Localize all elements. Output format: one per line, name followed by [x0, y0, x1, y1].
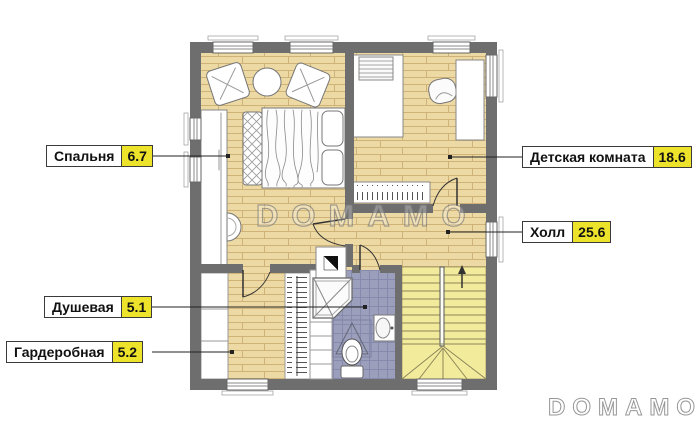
- room-label-wardrobe: Гардеробная5.2: [6, 341, 143, 363]
- wall-shower-jamb-left: [352, 265, 360, 273]
- wall-shower-stairs: [395, 265, 402, 379]
- room-area-kids-room: 18.6: [654, 146, 692, 168]
- room-area-bedroom: 6.7: [122, 145, 152, 167]
- window-left-1: [184, 113, 201, 145]
- leader-dot-bedroom: [226, 154, 230, 158]
- sink: [374, 315, 395, 341]
- tall-wardrobe: [201, 110, 227, 268]
- bed-bench: [243, 112, 262, 185]
- room-name-hall: Холл: [522, 221, 573, 243]
- toilet: [341, 339, 363, 378]
- wall-left: [190, 42, 201, 390]
- pillow-1: [322, 111, 343, 146]
- kids-wardrobe: [456, 60, 484, 140]
- window-top-3: [428, 36, 475, 53]
- window-right-2: [486, 217, 503, 262]
- floorplan-drawing: [0, 0, 700, 431]
- leader-dot-wardrobe: [230, 350, 234, 354]
- stairs-rail: [440, 267, 444, 346]
- room-name-wardrobe: Гардеробная: [6, 341, 113, 363]
- room-area-shower: 5.1: [122, 296, 152, 318]
- room-label-kids-room: Детская комната18.6: [522, 146, 692, 168]
- window-right-1: [486, 50, 503, 102]
- kids-dresser-ticks: [356, 185, 427, 200]
- wall-bedroom-kids: [345, 53, 354, 213]
- room-name-bedroom: Спальня: [46, 145, 122, 167]
- room-label-hall: Холл25.6: [522, 221, 611, 243]
- room-label-bedroom: Спальня6.7: [46, 145, 153, 167]
- floorplan-page: Спальня6.7 Детская комната18.6 Холл25.6 …: [0, 0, 700, 431]
- window-bottom-1: [222, 379, 273, 395]
- wall-kids-hall-b: [460, 204, 486, 213]
- room-area-hall: 25.6: [573, 221, 611, 243]
- leader-dot-shower: [363, 305, 367, 309]
- room-label-shower: Душевая5.1: [44, 296, 152, 318]
- window-top-1: [208, 36, 258, 53]
- wall-wardrobe-a: [190, 264, 243, 273]
- kids-desk: [359, 57, 393, 80]
- round-table: [253, 68, 281, 96]
- pillow-2: [322, 150, 343, 185]
- closet-shelves: [201, 273, 228, 379]
- room-name-kids-room: Детская комната: [522, 146, 654, 168]
- window-bottom-2: [412, 379, 467, 395]
- room-name-shower: Душевая: [44, 296, 122, 318]
- window-top-2: [285, 36, 338, 53]
- wall-kids-hall-a: [345, 204, 433, 213]
- wall-bedroom-jamb-top: [345, 213, 353, 219]
- window-left-2: [184, 152, 201, 187]
- leader-dot-hall: [446, 230, 450, 234]
- leader-dot-kids: [448, 155, 452, 159]
- room-area-wardrobe: 5.2: [113, 341, 143, 363]
